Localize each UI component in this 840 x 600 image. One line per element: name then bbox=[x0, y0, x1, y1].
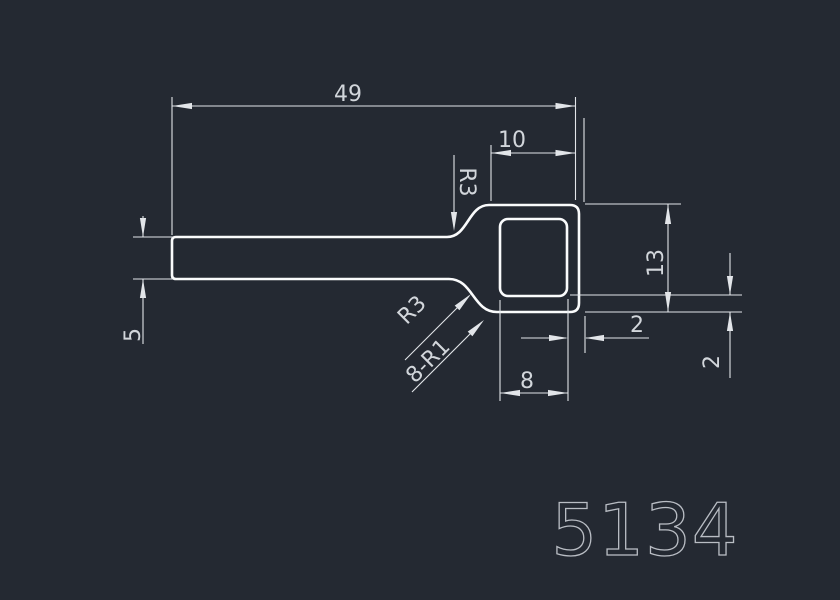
dim-box-width bbox=[491, 145, 576, 201]
dim-bar-thickness bbox=[133, 216, 173, 344]
profile-inner-cavity bbox=[500, 219, 567, 296]
cad-canvas[interactable]: 49 10 R3 5 13 2 2 8 R3 8-R1 5134 bbox=[0, 0, 840, 600]
dim-inner-width bbox=[500, 300, 568, 401]
dim-bottom-fillet-label: R3 bbox=[393, 291, 431, 329]
dim-bottom-wall-label: 2 bbox=[700, 355, 725, 369]
cad-drawing-area[interactable]: 49 10 R3 5 13 2 2 8 R3 8-R1 5134 bbox=[0, 0, 840, 600]
dim-box-width-label: 10 bbox=[498, 128, 526, 153]
dim-bottom-wall bbox=[727, 253, 733, 378]
dim-side-wall-label: 2 bbox=[630, 313, 644, 338]
dim-inner-corner-fillets-label: 8-R1 bbox=[401, 334, 455, 388]
extension-lines-right bbox=[570, 295, 742, 312]
dim-overall-length bbox=[172, 97, 584, 235]
dim-box-height-label: 13 bbox=[644, 249, 669, 277]
dim-inner-width-label: 8 bbox=[520, 369, 534, 394]
dim-top-fillet-label: R3 bbox=[454, 167, 479, 196]
profile-outline bbox=[172, 205, 579, 312]
dim-bar-thickness-label: 5 bbox=[121, 328, 146, 342]
part-number: 5134 bbox=[551, 488, 738, 572]
dim-overall-length-label: 49 bbox=[334, 82, 362, 107]
